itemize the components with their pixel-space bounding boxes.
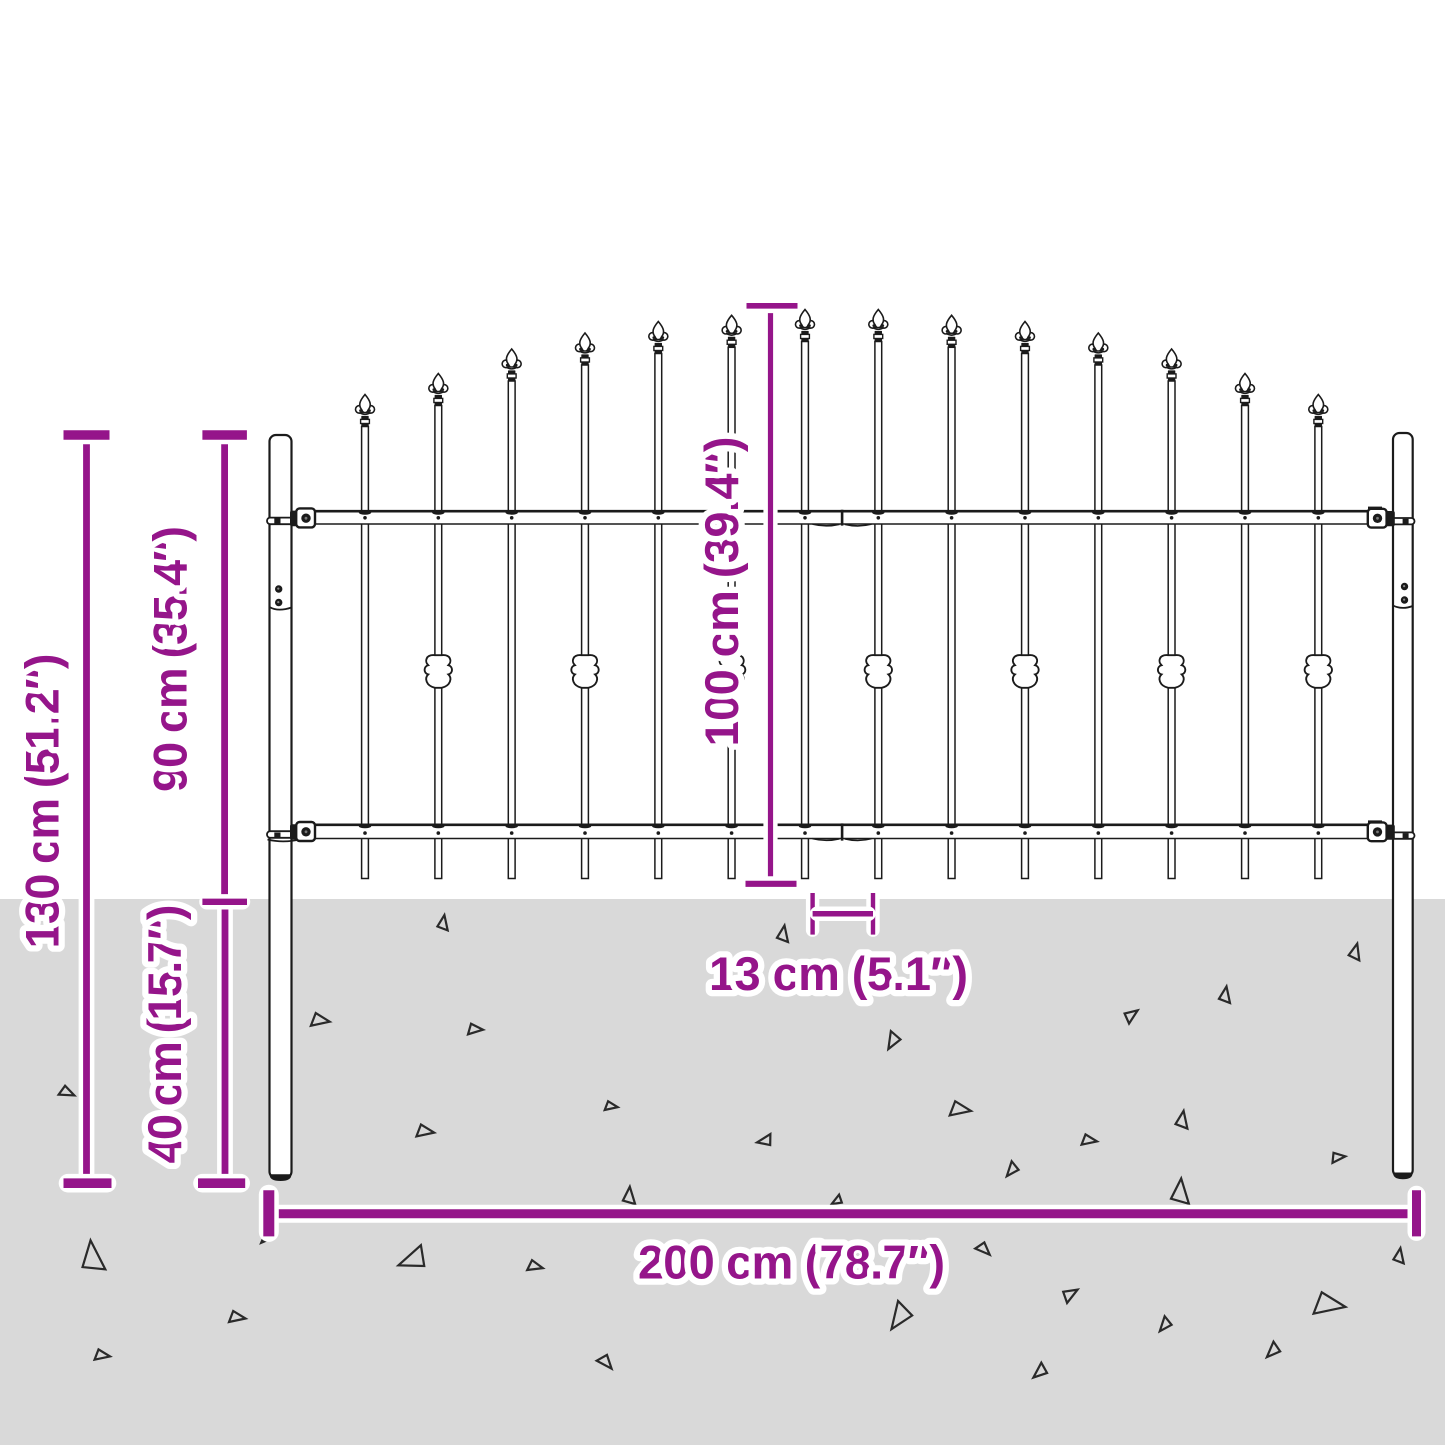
svg-text:13 cm (5.1″): 13 cm (5.1″) <box>709 947 968 1000</box>
svg-text:130 cm (51.2″): 130 cm (51.2″) <box>16 654 69 949</box>
svg-text:200 cm (78.7″): 200 cm (78.7″) <box>638 1235 945 1288</box>
svg-text:40 cm (15.7″): 40 cm (15.7″) <box>138 905 191 1164</box>
svg-text:90 cm (35.4″): 90 cm (35.4″) <box>144 526 197 792</box>
svg-text:100 cm (39.4″): 100 cm (39.4″) <box>695 437 748 747</box>
